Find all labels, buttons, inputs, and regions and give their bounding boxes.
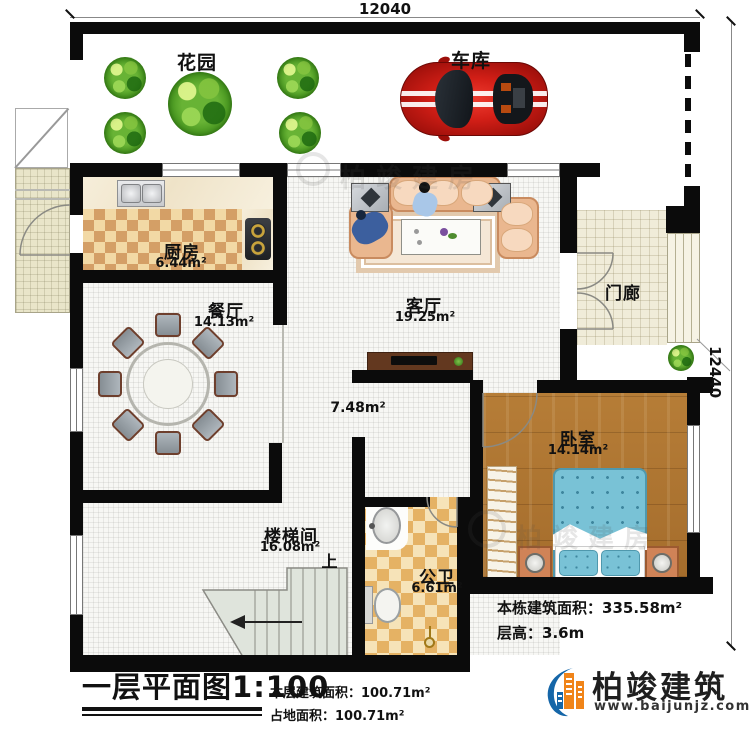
building-area-value: 335.58m² [602,599,682,617]
footprint-label: 占地面积： [270,709,335,724]
title-underline [82,714,262,716]
porch-label: 门廊 [605,279,641,304]
floor-area-stat: 本层建筑面积：100.71m² [270,682,430,701]
floor-area-value: 100.71m² [361,686,430,701]
door-arc [20,205,70,255]
stairs-up-label: 上 [321,548,338,572]
bedroom-area: 14.14m² [548,443,608,458]
door-arc [427,497,457,527]
floor-plan: 12040 12440 [0,0,750,730]
living-area: 19.25m² [395,310,455,325]
bathroom-area: 6.61m² [411,581,462,596]
hall-area: 7.48m² [330,400,385,416]
building-area-label: 本栋建筑面积： [497,599,602,617]
plan-title-main: 一层平面图 [82,670,232,704]
top-dimension-label: 12040 [330,0,440,18]
brand-website: www.baijunjz.com [594,699,750,714]
garden-label: 花园 [177,48,217,75]
building-area-stat: 本栋建筑面积：335.58m² [497,597,682,618]
garage-label: 车库 [451,46,491,73]
door-arcs [0,0,750,730]
dining-area: 14.13m² [194,315,254,330]
brand-logo-icon [545,666,589,718]
footprint-value: 100.71m² [335,709,404,724]
door-arc [483,393,537,447]
footprint-stat: 占地面积：100.71m² [270,705,404,724]
kitchen-area: 6.44m² [155,256,206,271]
storey-height-value: 3.6m [542,624,584,642]
storey-height-stat: 层高：3.6m [497,622,584,643]
stairwell-area: 16.08m² [260,540,320,555]
storey-height-label: 层高： [497,624,542,642]
floor-area-label: 本层建筑面积： [270,686,361,701]
title-underline [82,707,262,711]
right-dimension-label: 12440 [706,346,724,398]
